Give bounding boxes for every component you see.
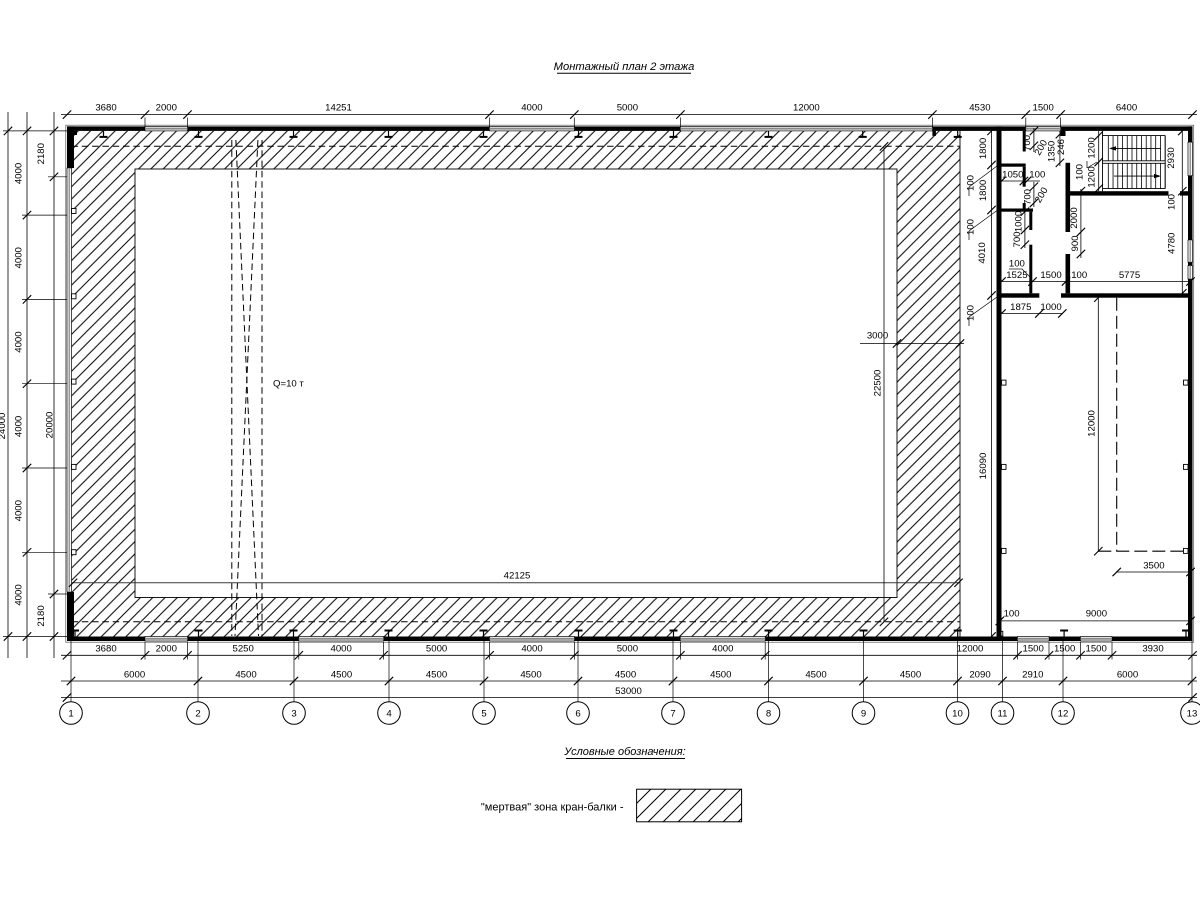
svg-text:3930: 3930 <box>1142 644 1163 655</box>
svg-text:6000: 6000 <box>124 669 145 680</box>
svg-text:2000: 2000 <box>1069 207 1080 228</box>
svg-text:4000: 4000 <box>14 331 25 352</box>
svg-text:10: 10 <box>952 709 963 720</box>
svg-text:6400: 6400 <box>1116 103 1137 114</box>
svg-text:100: 100 <box>1009 259 1025 270</box>
svg-text:4500: 4500 <box>235 669 256 680</box>
svg-text:4000: 4000 <box>14 584 25 605</box>
svg-text:6000: 6000 <box>1117 669 1138 680</box>
svg-text:4500: 4500 <box>710 669 731 680</box>
svg-text:4000: 4000 <box>331 644 352 655</box>
svg-text:1000: 1000 <box>1013 211 1024 232</box>
svg-text:100: 100 <box>966 175 977 191</box>
svg-text:2910: 2910 <box>1022 669 1043 680</box>
svg-text:12000: 12000 <box>1086 410 1097 437</box>
svg-text:1500: 1500 <box>1086 644 1107 655</box>
svg-text:5250: 5250 <box>233 644 254 655</box>
svg-text:4500: 4500 <box>615 669 636 680</box>
svg-text:"мертвая" зона кран-балки -: "мертвая" зона кран-балки - <box>481 802 624 814</box>
svg-text:2180: 2180 <box>36 605 47 626</box>
svg-text:1500: 1500 <box>1023 644 1044 655</box>
svg-text:1500: 1500 <box>1033 103 1054 114</box>
svg-text:100: 100 <box>1167 194 1178 210</box>
svg-text:4000: 4000 <box>14 416 25 437</box>
svg-text:4010: 4010 <box>977 242 988 263</box>
svg-text:2000: 2000 <box>156 103 177 114</box>
svg-text:900: 900 <box>1070 235 1081 251</box>
svg-text:5000: 5000 <box>617 644 638 655</box>
svg-text:7: 7 <box>670 709 675 720</box>
svg-text:3000: 3000 <box>867 331 888 342</box>
svg-text:4500: 4500 <box>331 669 352 680</box>
svg-text:4780: 4780 <box>1167 233 1178 254</box>
svg-text:4000: 4000 <box>14 163 25 184</box>
svg-text:1800: 1800 <box>978 180 989 201</box>
svg-text:22500: 22500 <box>872 370 883 397</box>
svg-text:1200: 1200 <box>1086 166 1097 187</box>
svg-text:1050: 1050 <box>1002 170 1023 181</box>
svg-text:1200: 1200 <box>1086 137 1097 158</box>
svg-text:4: 4 <box>386 709 392 720</box>
svg-text:8: 8 <box>766 709 771 720</box>
svg-text:4000: 4000 <box>14 500 25 521</box>
svg-text:4500: 4500 <box>900 669 921 680</box>
svg-text:1500: 1500 <box>1040 270 1061 281</box>
svg-text:4500: 4500 <box>805 669 826 680</box>
svg-text:42125: 42125 <box>504 570 531 581</box>
svg-text:3680: 3680 <box>95 103 116 114</box>
svg-text:2180: 2180 <box>36 143 47 164</box>
svg-text:1000: 1000 <box>1040 302 1061 313</box>
svg-text:Q=10 т: Q=10 т <box>273 379 304 390</box>
svg-text:3680: 3680 <box>95 644 116 655</box>
svg-text:2000: 2000 <box>156 644 177 655</box>
svg-text:5000: 5000 <box>617 103 638 114</box>
svg-text:5000: 5000 <box>426 644 447 655</box>
svg-text:1: 1 <box>68 709 73 720</box>
svg-text:4000: 4000 <box>712 644 733 655</box>
svg-text:5775: 5775 <box>1119 270 1140 281</box>
svg-text:12: 12 <box>1058 709 1069 720</box>
svg-text:700: 700 <box>1022 189 1033 205</box>
svg-text:100: 100 <box>1075 164 1086 180</box>
svg-text:11: 11 <box>998 709 1008 720</box>
svg-text:100: 100 <box>1071 270 1087 281</box>
svg-text:Условные обозначения:: Условные обозначения: <box>563 746 685 758</box>
svg-text:53000: 53000 <box>615 686 642 697</box>
svg-text:2930: 2930 <box>1166 147 1177 168</box>
svg-text:13: 13 <box>1187 709 1198 720</box>
svg-text:3: 3 <box>291 709 296 720</box>
svg-text:4530: 4530 <box>969 103 990 114</box>
svg-text:246: 246 <box>1056 139 1067 155</box>
svg-text:4000: 4000 <box>521 103 542 114</box>
svg-text:12000: 12000 <box>793 103 820 114</box>
svg-text:3500: 3500 <box>1143 560 1164 571</box>
svg-text:6: 6 <box>575 709 580 720</box>
svg-text:20000: 20000 <box>45 412 56 439</box>
svg-text:Монтажный план 2 этажа: Монтажный план 2 этажа <box>554 61 695 73</box>
svg-text:100: 100 <box>1029 170 1045 181</box>
svg-text:700: 700 <box>1012 231 1023 247</box>
svg-text:4000: 4000 <box>521 644 542 655</box>
svg-text:4500: 4500 <box>520 669 541 680</box>
svg-text:100: 100 <box>1004 609 1020 620</box>
svg-text:9: 9 <box>861 709 866 720</box>
svg-text:12000: 12000 <box>957 644 984 655</box>
svg-text:2090: 2090 <box>969 669 990 680</box>
svg-text:4500: 4500 <box>426 669 447 680</box>
svg-text:4000: 4000 <box>14 247 25 268</box>
svg-text:24000: 24000 <box>0 413 8 440</box>
svg-text:700: 700 <box>1022 135 1033 151</box>
svg-text:1800: 1800 <box>978 138 989 159</box>
svg-text:2: 2 <box>195 709 200 720</box>
svg-text:1500: 1500 <box>1054 644 1075 655</box>
svg-text:1875: 1875 <box>1010 302 1031 313</box>
svg-text:5: 5 <box>481 709 486 720</box>
svg-text:16090: 16090 <box>978 453 989 480</box>
svg-text:14251: 14251 <box>325 103 352 114</box>
svg-text:9000: 9000 <box>1086 609 1107 620</box>
